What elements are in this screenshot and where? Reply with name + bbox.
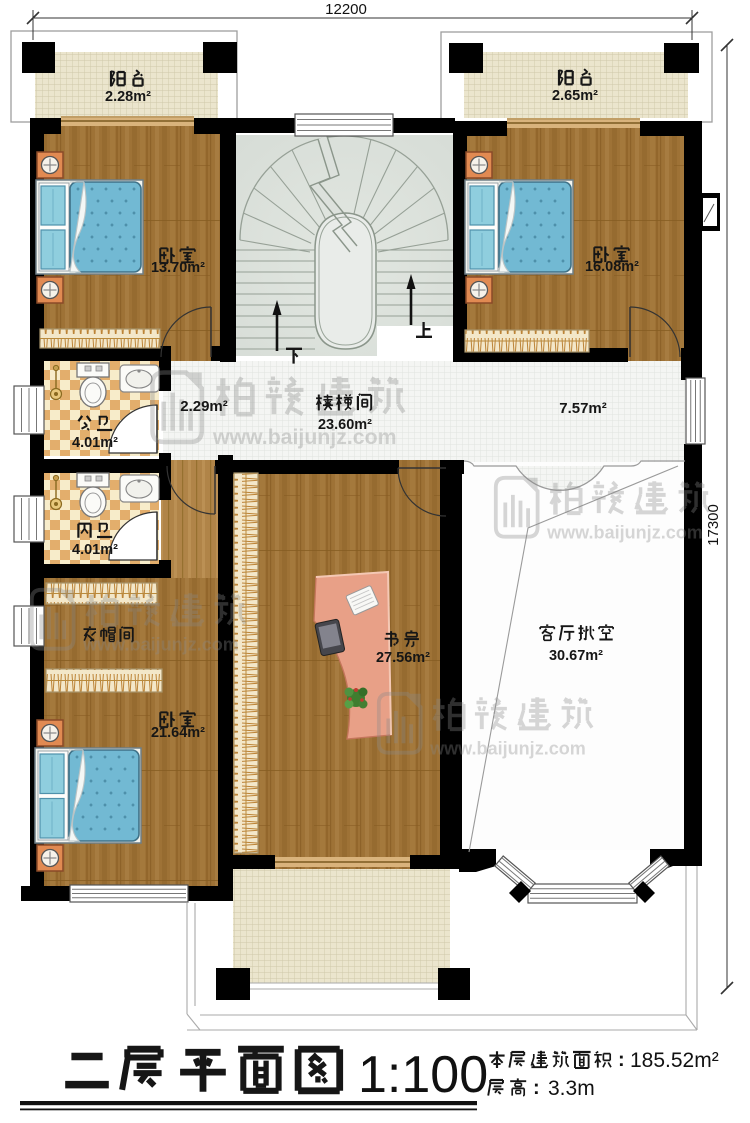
svg-text:www.baijunjz.com: www.baijunjz.com	[429, 739, 586, 759]
svg-text:3.3m: 3.3m	[548, 1077, 595, 1100]
svg-text:2.28m²: 2.28m²	[105, 89, 151, 105]
svg-text:www.baijunjz.com: www.baijunjz.com	[546, 523, 703, 543]
svg-text:185.52m²: 185.52m²	[630, 1049, 719, 1072]
svg-text:12200: 12200	[325, 1, 367, 18]
svg-text:4.01m²: 4.01m²	[72, 542, 118, 558]
svg-text:30.67m²: 30.67m²	[549, 648, 603, 664]
svg-text::: :	[618, 1049, 625, 1071]
svg-text:27.56m²: 27.56m²	[376, 650, 430, 666]
svg-text:23.60m²: 23.60m²	[318, 417, 372, 433]
svg-text:4.01m²: 4.01m²	[72, 435, 118, 451]
svg-text:2.29m²: 2.29m²	[180, 398, 228, 415]
svg-text::: :	[533, 1077, 540, 1099]
svg-text:7.57m²: 7.57m²	[559, 400, 607, 417]
svg-text:16.08m²: 16.08m²	[585, 259, 639, 275]
svg-text:1:100: 1:100	[358, 1046, 488, 1104]
svg-text:2.65m²: 2.65m²	[552, 88, 598, 104]
svg-text:www.baijunjz.com: www.baijunjz.com	[82, 635, 239, 655]
svg-text:17300: 17300	[705, 504, 722, 546]
svg-text:13.70m²: 13.70m²	[151, 260, 205, 276]
svg-text:21.64m²: 21.64m²	[151, 725, 205, 741]
